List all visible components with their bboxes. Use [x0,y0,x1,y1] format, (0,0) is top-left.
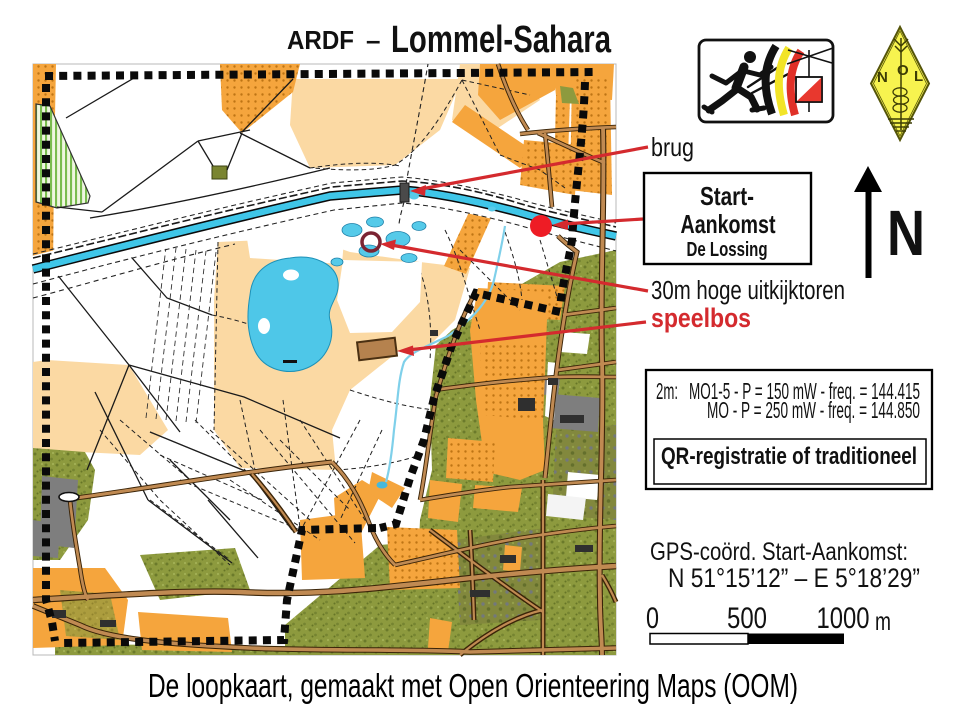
svg-text:0: 0 [646,602,659,635]
svg-text:500: 500 [727,602,767,635]
svg-text:De loopkaart, gemaakt met Open: De loopkaart, gemaakt met Open Orienteer… [148,667,798,704]
svg-text:N 51°15’12” – E 5°18’29”: N 51°15’12” – E 5°18’29” [668,563,920,593]
svg-text:1000: 1000 [817,602,870,635]
svg-text:m: m [875,606,891,636]
svg-text:brug: brug [651,132,694,162]
svg-text:Aankomst: Aankomst [681,209,776,239]
svg-text:N: N [887,197,925,269]
svg-text:–: – [366,25,380,55]
svg-text:N: N [877,69,888,86]
svg-text:O: O [897,62,909,79]
svg-text:Lommel-Sahara: Lommel-Sahara [391,19,612,61]
svg-text:Start-: Start- [700,181,754,211]
svg-text:2m:: 2m: [656,378,678,404]
svg-text:MO - P = 250 mW - freq. = 144.: MO - P = 250 mW - freq. = 144.850 [707,397,920,423]
svg-text:L: L [914,68,923,85]
svg-text:QR-registratie of traditioneel: QR-registratie of traditioneel [661,443,917,470]
svg-text:ARDF: ARDF [287,25,354,55]
svg-text:30m hoge uitkijktoren: 30m hoge uitkijktoren [651,277,845,305]
svg-text:GPS-coörd. Start-Aankomst:: GPS-coörd. Start-Aankomst: [650,538,908,566]
svg-text:De Lossing: De Lossing [687,239,768,261]
svg-text:speelbos: speelbos [651,303,751,333]
